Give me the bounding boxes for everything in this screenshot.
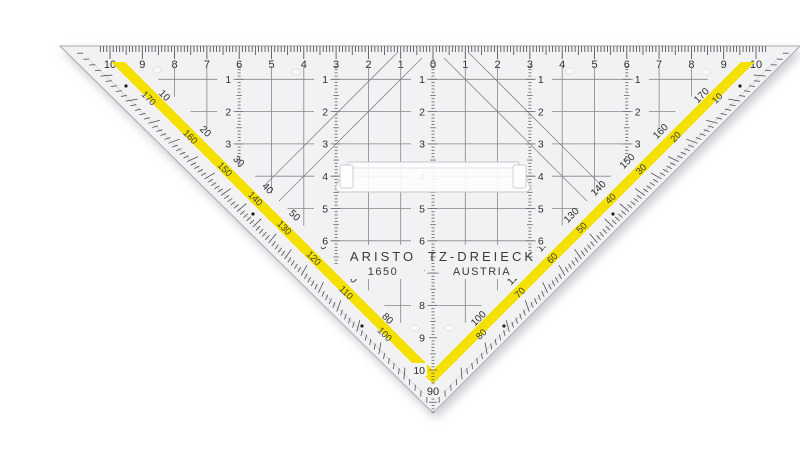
svg-text:2: 2	[322, 106, 328, 118]
product-name-text: TZ-DREIECK	[428, 249, 536, 264]
svg-text:4: 4	[322, 171, 328, 183]
svg-text:2: 2	[225, 106, 231, 118]
svg-text:3: 3	[538, 139, 544, 151]
svg-text:9: 9	[139, 59, 145, 71]
svg-text:3: 3	[419, 139, 425, 151]
svg-text:2: 2	[635, 106, 641, 118]
svg-text:5: 5	[322, 203, 328, 215]
svg-text:4: 4	[538, 171, 544, 183]
svg-text:10: 10	[413, 365, 425, 377]
svg-text:9: 9	[721, 59, 727, 71]
svg-text:2: 2	[538, 106, 544, 118]
country-text: AUSTRIA	[453, 266, 511, 278]
svg-text:3: 3	[322, 139, 328, 151]
set-square: 10987654321012345678910 1701601501401301…	[40, 16, 800, 446]
svg-text:5: 5	[538, 203, 544, 215]
svg-text:3: 3	[225, 139, 231, 151]
svg-text:1: 1	[225, 74, 231, 86]
finger-handle	[336, 162, 530, 192]
svg-text:1: 1	[322, 74, 328, 86]
vertex-degree-label: 90	[427, 386, 439, 398]
svg-text:1: 1	[538, 74, 544, 86]
model-text: 1650	[368, 266, 398, 278]
svg-text:6: 6	[538, 236, 544, 248]
svg-text:8: 8	[419, 300, 425, 312]
svg-text:2: 2	[419, 106, 425, 118]
svg-text:6: 6	[322, 236, 328, 248]
svg-text:3: 3	[635, 139, 641, 151]
set-square-body: 10987654321012345678910 1701601501401301…	[60, 46, 800, 413]
set-square-photo: 10987654321012345678910 1701601501401301…	[40, 16, 800, 446]
base	[60, 46, 800, 413]
svg-text:9: 9	[419, 333, 425, 345]
svg-text:5: 5	[419, 203, 425, 215]
svg-text:1: 1	[635, 74, 641, 86]
brand-text: ARISTO	[350, 249, 416, 264]
svg-text:1: 1	[419, 74, 425, 86]
